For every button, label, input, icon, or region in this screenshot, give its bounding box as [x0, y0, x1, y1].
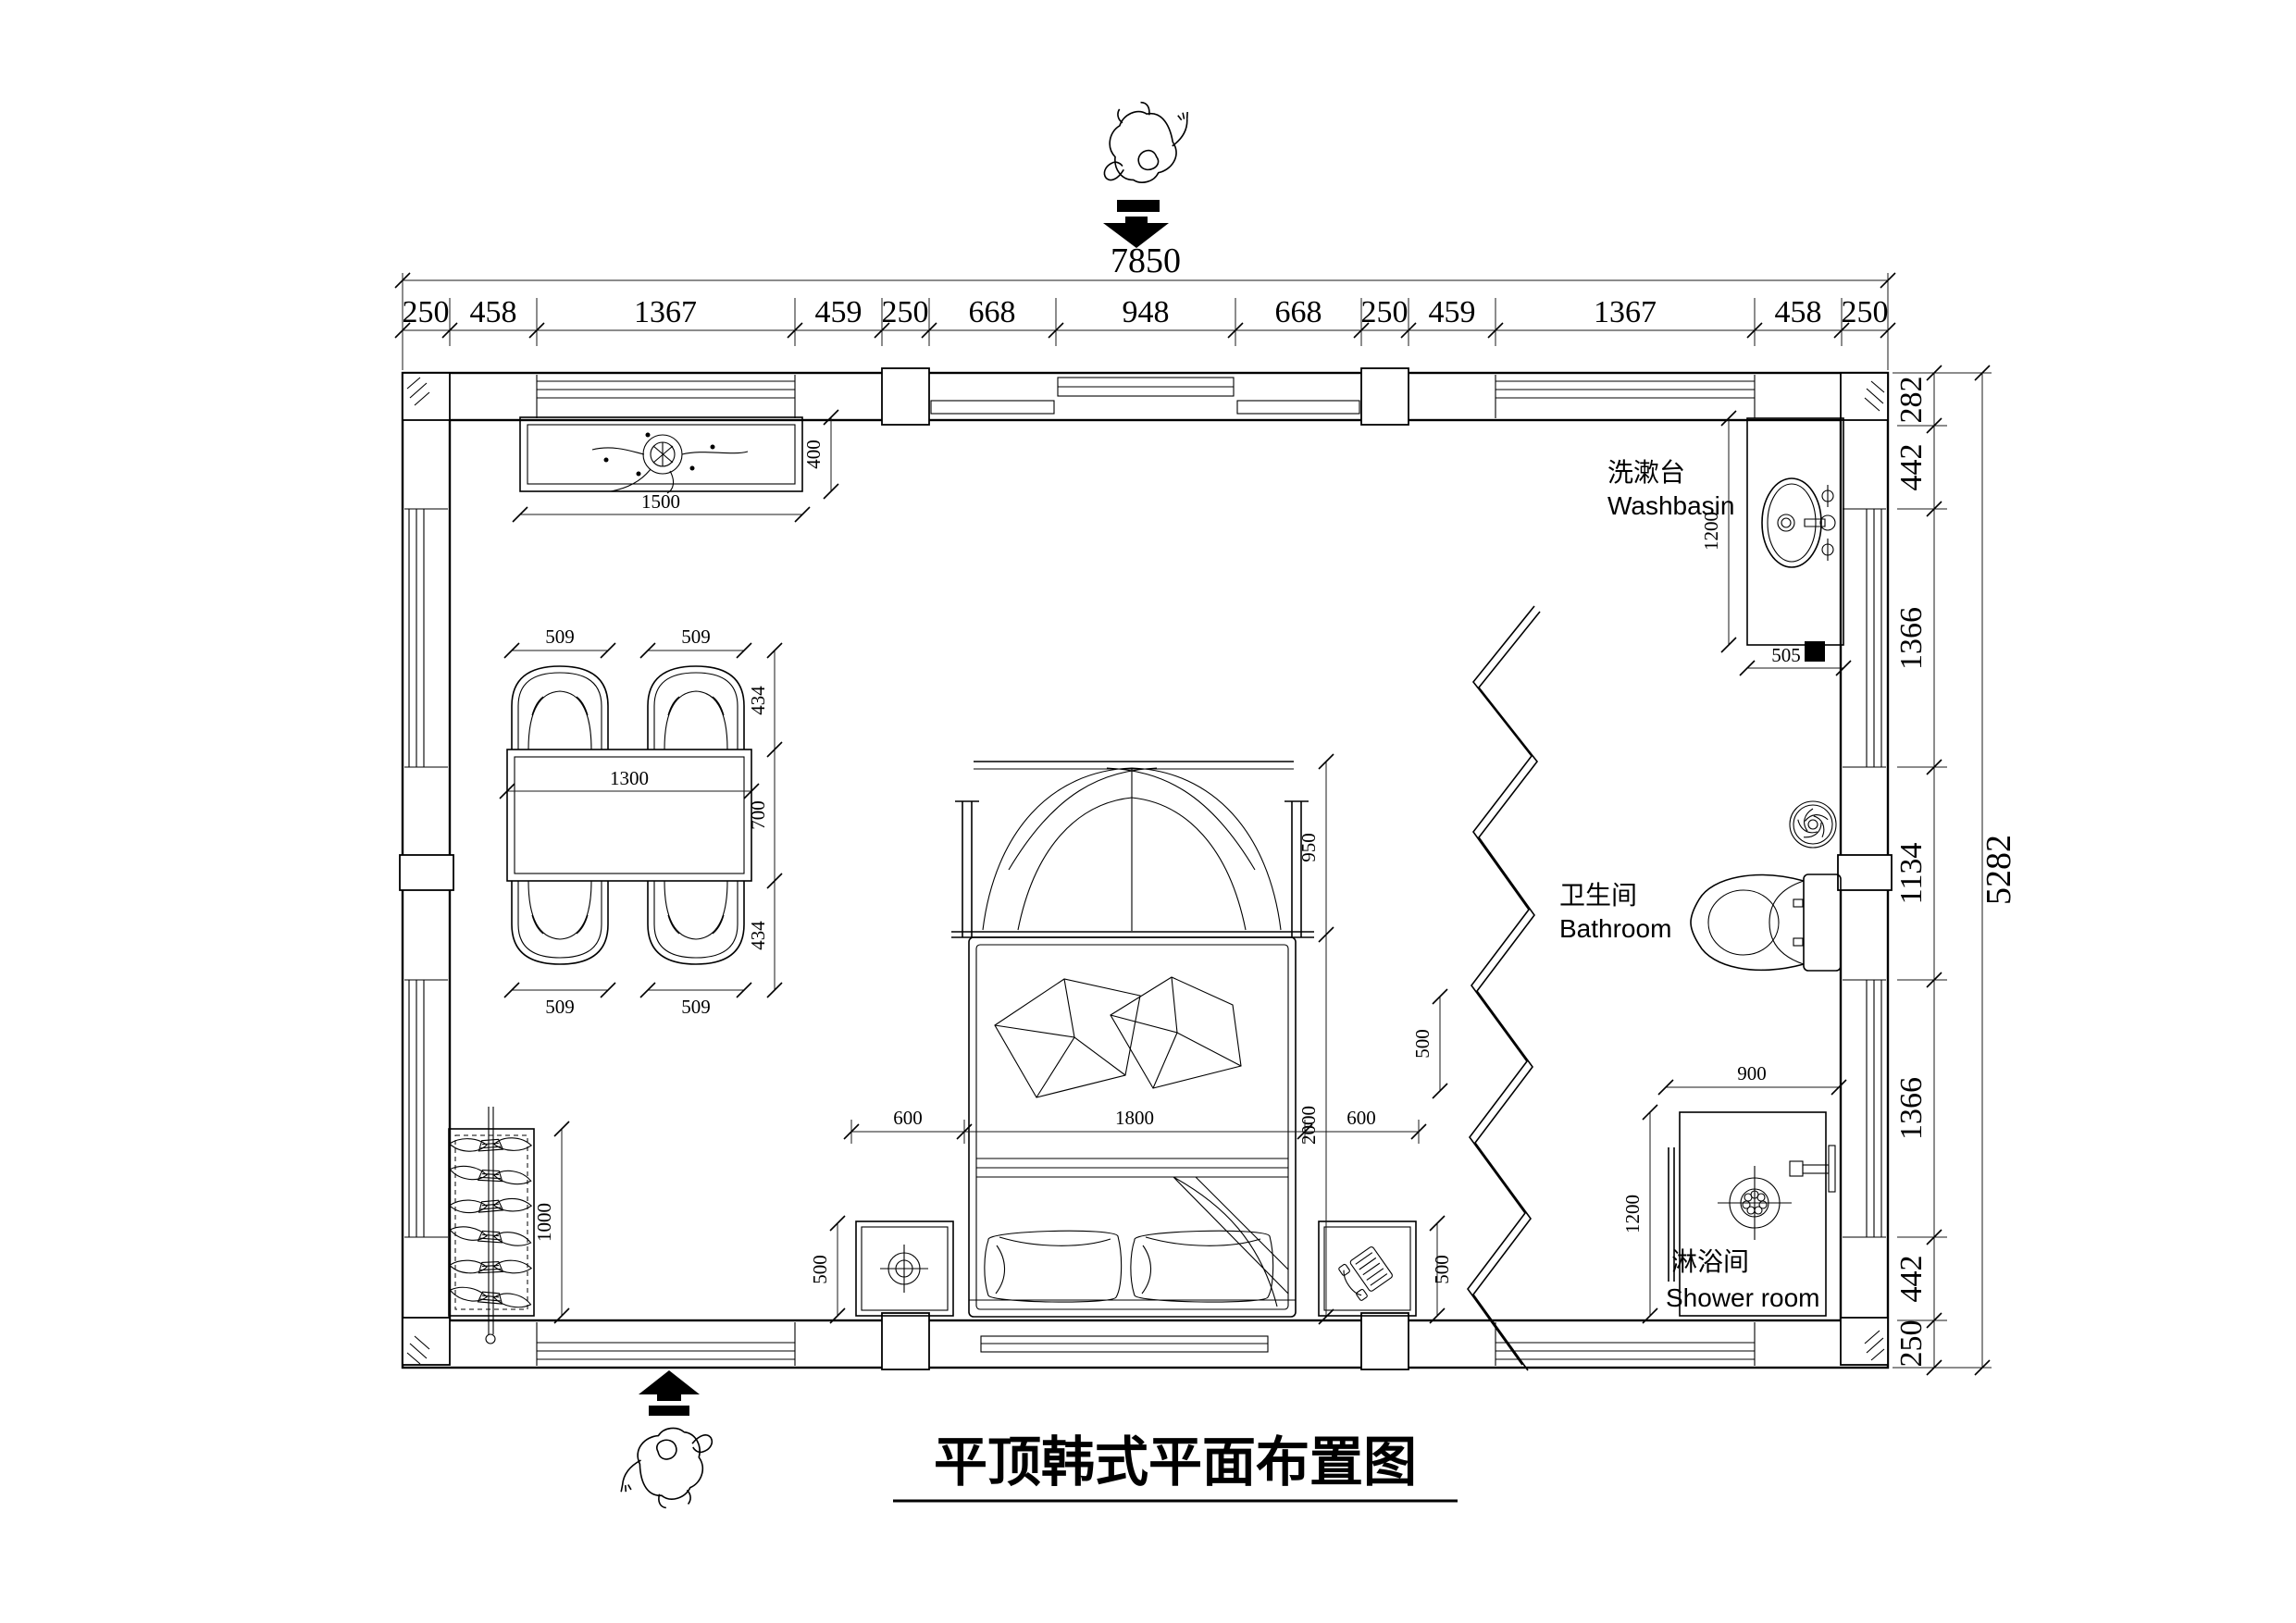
dim-table-side-1: 700 — [747, 800, 769, 830]
dim-lamp-width: 1500 — [641, 490, 680, 513]
window-top-left — [537, 375, 795, 418]
dim-chair-tl: 509 — [545, 626, 575, 648]
toilet — [1691, 874, 1841, 971]
dim-right-seg-6: 250 — [1894, 1320, 1929, 1368]
label-washbasin-zh: 洗漱台 — [1607, 458, 1685, 487]
hanger-icon — [450, 1165, 532, 1184]
dim-chain-top: 7850 250 458 1367 459 250 668 948 668 25… — [395, 242, 1895, 370]
dim-chair-tr: 509 — [681, 626, 711, 648]
dim-top-seg-9: 459 — [1429, 295, 1476, 329]
dim-top-seg-12: 250 — [1842, 295, 1889, 329]
hanger-icon — [450, 1257, 532, 1276]
floor-drain-icon — [1805, 641, 1825, 662]
entry-panel-bottom — [981, 1336, 1268, 1352]
shower-head-icon — [1790, 1146, 1835, 1192]
dining-set: 1300 509 509 509 509 434 700 434 — [500, 626, 782, 1018]
dining-chair — [512, 881, 608, 964]
dim-basin-width: 505 — [1771, 644, 1801, 666]
dim-right-seg-2: 1366 — [1894, 607, 1929, 670]
zigzag-partition — [1468, 606, 1540, 1370]
dim-right-overall: 5282 — [1980, 835, 2018, 905]
pillow — [995, 977, 1241, 1097]
corner-hatch — [407, 378, 1884, 1364]
window-right-upper — [1843, 509, 1886, 767]
title-text: 平顶韩式平面布置图 — [934, 1432, 1417, 1493]
floor-plan-drawing: 7850 250 458 1367 459 250 668 948 668 25… — [0, 0, 2296, 1623]
dim-nightstand-right: 500 — [1431, 1255, 1453, 1284]
label-bathroom-en: Bathroom — [1559, 914, 1671, 943]
label-washbasin-en: Washbasin — [1607, 491, 1734, 520]
dim-table-width: 1300 — [610, 767, 649, 789]
dim-top-seg-5: 668 — [969, 295, 1016, 329]
entry-arrow-bottom — [639, 1370, 700, 1394]
bathroom-area: 卫生间 Bathroom — [1559, 801, 1841, 971]
bed-canopy — [951, 762, 1314, 937]
dim-top-seg-1: 458 — [470, 295, 517, 329]
dining-chair — [512, 666, 608, 750]
dim-chair-br: 509 — [681, 996, 711, 1018]
window-bottom-right — [1496, 1322, 1755, 1366]
dining-chair — [648, 881, 744, 964]
nightstand-right — [1319, 1221, 1416, 1316]
dim-bed-row-1: 1800 — [1115, 1107, 1154, 1129]
dim-top-seg-8: 250 — [1361, 295, 1409, 329]
dining-chair — [648, 666, 744, 750]
phone-icon — [1337, 1245, 1395, 1302]
label-shower-zh: 淋浴间 — [1671, 1247, 1749, 1276]
basin — [1762, 478, 1821, 567]
entry-door-top — [931, 378, 1359, 414]
dim-top-seg-3: 459 — [815, 295, 863, 329]
dim-lamp-height: 400 — [802, 440, 825, 469]
dim-top-seg-6: 948 — [1123, 295, 1170, 329]
hanger-icon — [450, 1226, 532, 1247]
dim-right-seg-4: 1366 — [1894, 1077, 1929, 1140]
washbasin-counter — [1747, 418, 1843, 645]
bed-group: 950 2000 600 1800 600 500 500 500 — [809, 754, 1453, 1324]
hanger-icon — [449, 1195, 531, 1217]
shower-area: 900 1200 淋浴间 Shower room — [1621, 1062, 1846, 1323]
label-bathroom-zh: 卫生间 — [1559, 881, 1637, 910]
window-left-upper — [404, 509, 448, 767]
exhaust-fan-icon — [1790, 801, 1836, 848]
plan-title: 平顶韩式平面布置图 — [893, 1432, 1458, 1501]
entry-bottom — [611, 1370, 725, 1518]
dim-bed-row-2: 600 — [1347, 1107, 1376, 1129]
label-shower-en: Shower room — [1666, 1283, 1820, 1312]
pillow — [985, 1231, 1273, 1302]
dim-top-seg-7: 668 — [1275, 295, 1322, 329]
person-figure-top — [1086, 88, 1206, 195]
dim-top-seg-0: 250 — [403, 295, 450, 329]
dim-table-side-0: 434 — [747, 686, 769, 715]
dim-top-overall: 7850 — [1111, 242, 1181, 280]
dim-bed-length: 2000 — [1297, 1106, 1320, 1145]
dim-top-seg-4: 250 — [882, 295, 929, 329]
nightstand-left — [856, 1221, 953, 1316]
dim-shower-width: 900 — [1737, 1062, 1767, 1084]
washbasin-area: 1200 505 洗漱台 Washbasin — [1607, 411, 1851, 675]
window-top-right — [1496, 375, 1755, 418]
wardrobe: 1000 — [449, 1107, 569, 1344]
entry-arrow-top — [1117, 200, 1160, 212]
window-right-lower — [1843, 980, 1886, 1237]
dim-right-seg-0: 282 — [1894, 377, 1929, 424]
dim-nightstand-left: 500 — [809, 1255, 831, 1284]
hanger-icon — [450, 1134, 532, 1156]
entry-top — [1086, 88, 1206, 248]
dim-right-seg-1: 442 — [1894, 444, 1929, 491]
dim-top-seg-10: 1367 — [1594, 295, 1657, 329]
window-left-lower — [404, 980, 448, 1237]
ceiling-lamp: 1500 400 — [513, 410, 838, 522]
dim-bed-row-0: 600 — [893, 1107, 923, 1129]
dim-wardrobe: 1000 — [533, 1203, 555, 1242]
dim-chain-right: 5282 282 442 1366 1134 1366 442 250 — [1893, 365, 2018, 1375]
dim-top-seg-2: 1367 — [634, 295, 697, 329]
person-figure-bottom — [611, 1420, 725, 1518]
dim-right-seg-5: 442 — [1894, 1256, 1929, 1303]
dim-bed-clearance: 500 — [1411, 1029, 1433, 1059]
dim-shower-depth: 1200 — [1621, 1195, 1644, 1233]
dim-top-seg-11: 458 — [1775, 295, 1822, 329]
dim-table-side-2: 434 — [747, 921, 769, 950]
shower-drain-icon — [1718, 1166, 1792, 1240]
window-bottom-left — [537, 1322, 795, 1366]
dim-chair-bl: 509 — [545, 996, 575, 1018]
hanger-icon — [449, 1286, 531, 1308]
dim-bed-canopy: 950 — [1297, 833, 1320, 862]
floor-plan-sheet: 7850 250 458 1367 459 250 668 948 668 25… — [0, 0, 2296, 1623]
dim-right-seg-3: 1134 — [1894, 843, 1929, 905]
